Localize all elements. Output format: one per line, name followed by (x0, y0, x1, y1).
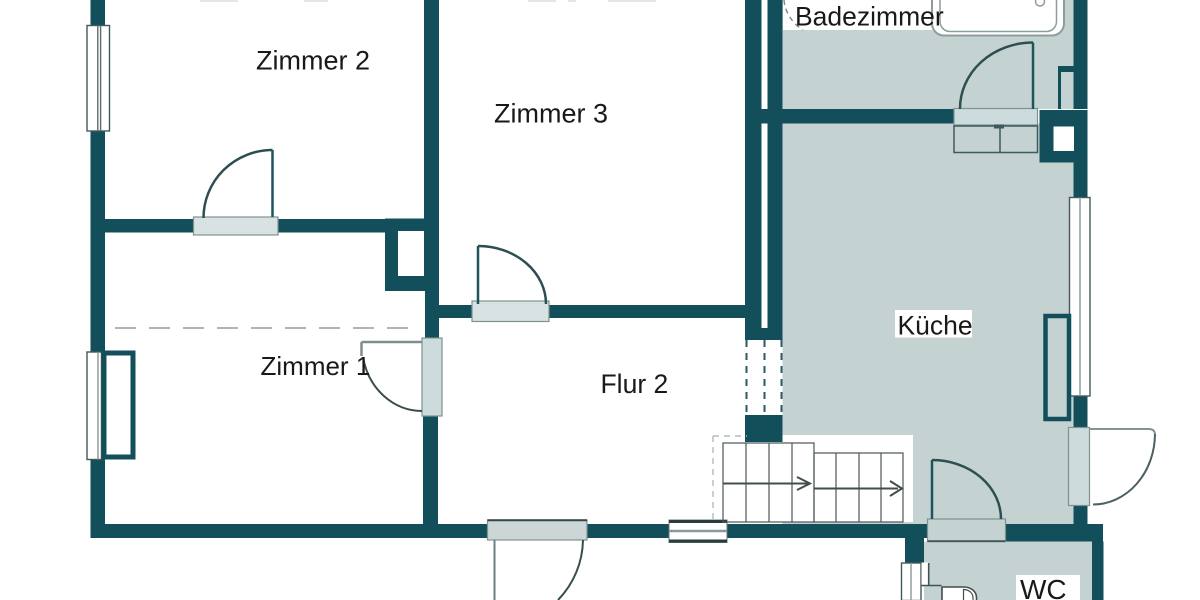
svg-text:WC: WC (1020, 574, 1067, 600)
svg-text:Zimmer 1: Zimmer 1 (261, 351, 371, 381)
svg-text:Flur 2: Flur 2 (601, 369, 669, 399)
svg-text:Zimmer 2: Zimmer 2 (256, 46, 370, 76)
svg-text:Zimmer 3: Zimmer 3 (494, 99, 608, 129)
svg-text:Badezimmer: Badezimmer (795, 2, 944, 32)
svg-text:Küche: Küche (898, 311, 973, 341)
